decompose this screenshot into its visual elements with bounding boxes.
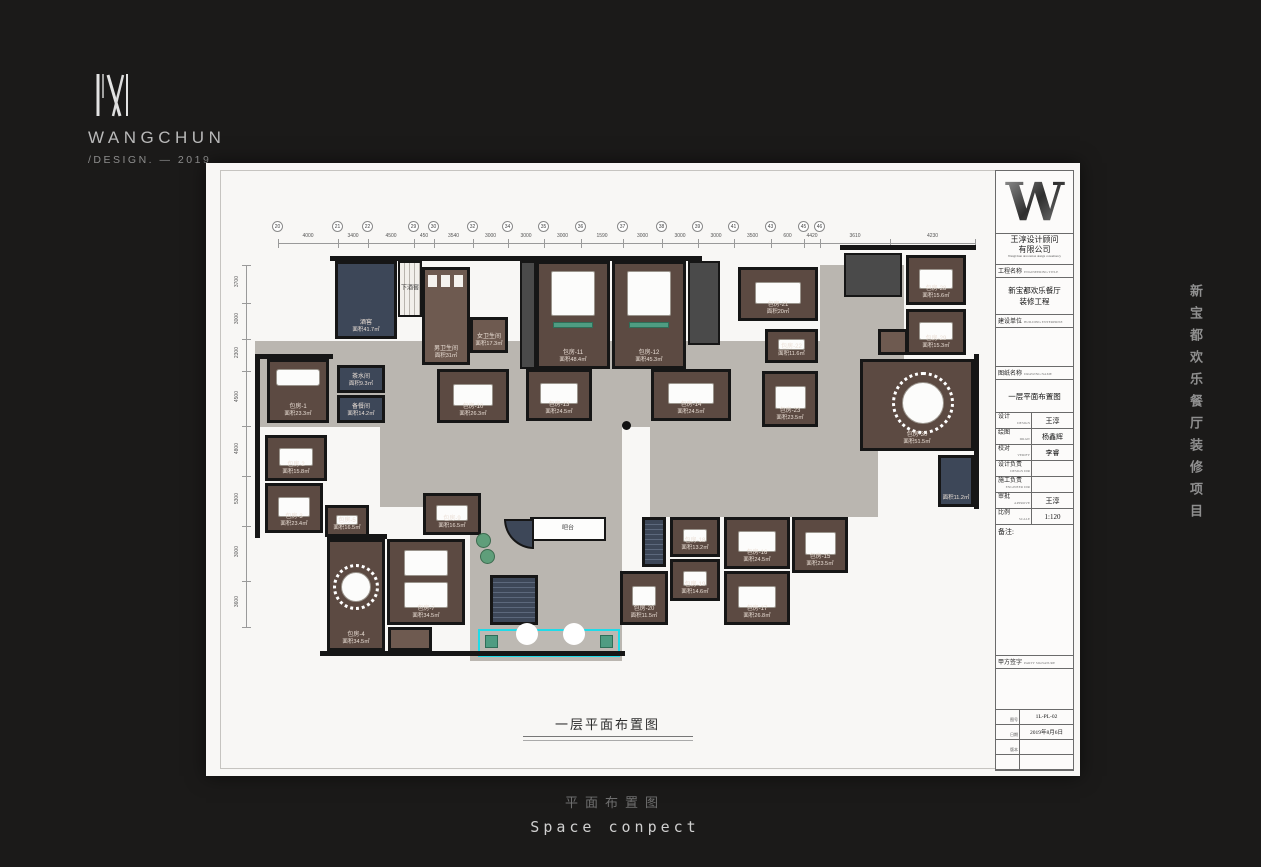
room-label: 酒窖面积41.7㎡ xyxy=(339,320,393,334)
drawing-name-label: 图纸名称DRAWING NAME xyxy=(996,367,1073,380)
table-icon xyxy=(919,269,952,289)
dimension-tick xyxy=(820,239,821,248)
table-icon xyxy=(278,497,310,517)
dimension-value: 4500 xyxy=(234,391,240,402)
room-label: 包房-11面积48.4㎡ xyxy=(540,350,606,364)
wall-segment xyxy=(974,354,979,509)
plan-room: 包房-22面积11.6㎡ xyxy=(765,329,818,363)
titleblock-w-logo-icon: W xyxy=(1005,174,1065,230)
plan-room: 备餐间面积14.2㎡ xyxy=(337,395,385,423)
plan-room: 男卫生间面积31㎡ xyxy=(422,267,470,365)
grid-bubble: 35 xyxy=(538,221,549,232)
dimension-line xyxy=(246,265,247,627)
caption-underline xyxy=(523,736,693,741)
grid-bubble: 30 xyxy=(428,221,439,232)
wall-segment xyxy=(255,354,260,538)
dimension-value: 4420 xyxy=(806,233,817,239)
dimension-tick xyxy=(623,239,624,248)
room-label: 备餐间面积14.2㎡ xyxy=(341,404,381,418)
plan-room: 包房-14面积24.5㎡ xyxy=(651,369,731,421)
sign-label: 甲方签字PARTY SIGNATURE xyxy=(996,656,1073,669)
entry-door-icon xyxy=(563,623,585,645)
plan-room: 茶水间面积9.3㎡ xyxy=(337,365,385,393)
plan-room: 吧台 xyxy=(530,517,606,541)
project-label: 工程名称ENGINEERING TITLE xyxy=(996,265,1073,278)
planter-icon xyxy=(600,635,613,648)
table-icon xyxy=(738,586,775,608)
remark-cell: 备注: xyxy=(996,525,1073,656)
table-icon xyxy=(805,532,836,555)
dimension-value: 4500 xyxy=(385,233,396,239)
plan-room: 包房-13面积24.5㎡ xyxy=(526,369,592,421)
dimension-tick xyxy=(698,239,699,248)
grid-bubble: 32 xyxy=(467,221,478,232)
wall-segment xyxy=(330,256,702,261)
dimension-value: 5300 xyxy=(234,493,240,504)
wangchun-logo-icon xyxy=(90,70,136,120)
side-project-text: 新宝都欢乐餐厅装修项目 xyxy=(1186,284,1205,526)
dimension-value: 3400 xyxy=(347,233,358,239)
plan-room: 包房-17面积26.8㎡ xyxy=(724,571,790,625)
wall-segment xyxy=(255,354,333,359)
plant-icon xyxy=(480,549,495,564)
entry-door-icon xyxy=(516,623,538,645)
plan-room xyxy=(688,261,720,345)
dimension-tick xyxy=(434,239,435,248)
dimension-line xyxy=(278,243,975,244)
dimension-tick xyxy=(414,239,415,248)
client-value xyxy=(996,328,1073,367)
room-label: 包房-10面积26.3㎡ xyxy=(441,404,505,418)
brand-name: WANGCHUN xyxy=(88,128,225,148)
plan-room xyxy=(642,517,666,567)
room-label: 包房-4面积34.5㎡ xyxy=(331,632,381,646)
plan-room: 包房-15面积23.5㎡ xyxy=(792,517,848,573)
dimension-value: 3000 xyxy=(674,233,685,239)
plan-room xyxy=(844,253,902,297)
dimension-value: 450 xyxy=(420,233,428,239)
table-icon xyxy=(540,383,577,404)
round-table-icon xyxy=(341,572,371,602)
titleblock-person-row: 设计负责DESIGN DIR xyxy=(996,461,1073,477)
dimension-tick xyxy=(242,476,251,477)
table-icon xyxy=(778,339,804,350)
dimension-tick xyxy=(544,239,545,248)
dimension-tick xyxy=(242,426,251,427)
room-label: 男卫生间面积31㎡ xyxy=(426,346,466,360)
corridor xyxy=(470,421,622,661)
titleblock-bottom-row: 日期2019年8月6日 xyxy=(996,725,1073,740)
plan-room: 包房-19面积14.6㎡ xyxy=(670,559,720,601)
dimension-value: 3000 xyxy=(557,233,568,239)
grid-bubble: 21 xyxy=(332,221,343,232)
table-icon xyxy=(668,383,714,404)
dimension-tick xyxy=(242,627,251,628)
dimension-tick xyxy=(242,303,251,304)
room-label: 面积11.2㎡ xyxy=(942,495,970,502)
footer-captions: 平面布置图 Space conpect xyxy=(400,792,830,836)
table-icon xyxy=(453,384,494,406)
dimension-tick xyxy=(242,339,251,340)
dimension-tick xyxy=(242,265,251,266)
footer-caption-cn: 平面布置图 xyxy=(400,792,830,811)
room-label: 包房-21面积20㎡ xyxy=(742,302,814,316)
dimension-value: 600 xyxy=(783,233,791,239)
grid-bubble: 45 xyxy=(798,221,809,232)
dimension-value: 3000 xyxy=(234,546,240,557)
dimension-tick xyxy=(242,581,251,582)
dimension-value: 3000 xyxy=(485,233,496,239)
plan-room: 包房-20面积11.5㎡ xyxy=(620,571,668,625)
room-label: 吧台 xyxy=(533,525,603,533)
company-name: 王淳设计顾问 有限公司 WangChun decoration design c… xyxy=(996,234,1073,265)
svg-text:W: W xyxy=(1005,174,1065,230)
project-name: 新宝都欢乐餐厅 装修工程 xyxy=(996,278,1073,315)
dimension-tick xyxy=(662,239,663,248)
plan-room: 包房-21面积20㎡ xyxy=(738,267,818,321)
grid-bubble: 39 xyxy=(692,221,703,232)
plan-room xyxy=(388,627,432,651)
wc-stalls-icon xyxy=(428,275,463,287)
table-icon xyxy=(683,571,708,585)
plan-caption-text: 一层平面布置图 xyxy=(545,714,670,736)
plan-room: 包房-23面积23.5㎡ xyxy=(762,371,818,427)
room-label: 包房-7面积34.5㎡ xyxy=(391,606,461,620)
client-label: 建设单位BUILDING ENTERPRISE xyxy=(996,315,1073,328)
titleblock-bottom-row xyxy=(996,755,1073,769)
sign-box xyxy=(996,669,1073,710)
grid-bubble: 43 xyxy=(765,221,776,232)
page-background: WANGCHUN /DESIGN. — 2019 酒窖面积41.7㎡下酒窖男卫生… xyxy=(0,0,1261,867)
plan-room: 包房-4面积34.5㎡ xyxy=(327,539,385,651)
grid-bubble: 38 xyxy=(656,221,667,232)
table-icon xyxy=(404,582,449,608)
sofa-icon xyxy=(276,369,321,386)
plan-room xyxy=(878,329,908,355)
dimension-value: 1590 xyxy=(596,233,607,239)
room-label: 包房-30面积51.5㎡ xyxy=(864,432,970,446)
plan-room: 包房-12面积45.3㎡ xyxy=(612,261,686,369)
dimension-tick xyxy=(338,239,339,248)
titleblock-person-row: 校对VERIFY李睿 xyxy=(996,445,1073,461)
dimension-value: 3600 xyxy=(234,596,240,607)
plan-room: 包房-2面积15.8㎡ xyxy=(265,435,327,481)
dimension-tick xyxy=(473,239,474,248)
dimension-tick xyxy=(581,239,582,248)
plan-room: 包房-5面积16.5㎡ xyxy=(325,505,369,537)
table-icon xyxy=(627,271,672,316)
dimension-tick xyxy=(804,239,805,248)
room-label: 包房-12面积45.3㎡ xyxy=(616,350,682,364)
plan-room: 女卫生间面积17.3㎡ xyxy=(470,317,508,353)
dimension-tick xyxy=(508,239,509,248)
dimension-tick xyxy=(368,239,369,248)
titleblock-person-row: 设计DESIGN王淳 xyxy=(996,413,1073,429)
titleblock-logo: W xyxy=(996,171,1073,234)
room-label: 女卫生间面积17.3㎡ xyxy=(474,334,504,348)
table-icon xyxy=(279,448,314,466)
round-table-icon xyxy=(902,382,944,424)
titleblock-person-row: 审批APPROVE王淳 xyxy=(996,493,1073,509)
plan-room xyxy=(520,261,536,369)
wall-segment xyxy=(327,534,387,539)
drawing-sheet: 酒窖面积41.7㎡下酒窖男卫生间面积31㎡女卫生间面积17.3㎡包房-11面积4… xyxy=(206,163,1080,776)
grid-bubble: 22 xyxy=(362,221,373,232)
table-icon xyxy=(683,529,708,543)
plan-room: 包房-11面积48.4㎡ xyxy=(536,261,610,369)
plan-room: 酒窖面积41.7㎡ xyxy=(335,261,397,339)
room-label: 包房-23面积23.5㎡ xyxy=(766,408,814,422)
table-icon xyxy=(336,515,357,525)
plan-room: 包房-30面积51.5㎡ xyxy=(860,359,974,451)
logo-block: WANGCHUN /DESIGN. — 2019 xyxy=(88,70,225,166)
room-label: 包房-17面积26.8㎡ xyxy=(728,606,786,620)
table-icon xyxy=(775,386,806,409)
titleblock-person-row: 比例SCALE1:120 xyxy=(996,509,1073,524)
brand-subtitle: /DESIGN. — 2019 xyxy=(88,154,225,166)
room-label: 下酒窖 xyxy=(401,285,419,293)
grid-bubble: 29 xyxy=(408,221,419,232)
dimension-tick xyxy=(771,239,772,248)
wall-segment xyxy=(320,651,625,656)
dimension-tick xyxy=(278,239,279,248)
dimension-value: 3540 xyxy=(448,233,459,239)
dimension-value: 3500 xyxy=(747,233,758,239)
dimension-value: 3000 xyxy=(234,313,240,324)
room-label: 包房-20面积11.5㎡ xyxy=(624,606,664,620)
dimension-tick xyxy=(734,239,735,248)
plan-room: 包房-3面积23.4㎡ xyxy=(265,483,323,533)
plan-room: 面积11.2㎡ xyxy=(938,455,974,507)
plan-caption: 一层平面布置图 xyxy=(220,714,995,741)
titleblock-bottom-row: 图号1L-PL-02 xyxy=(996,710,1073,725)
titleblock-person-row: 绘图DRAW杨鑫辉 xyxy=(996,429,1073,445)
planter-icon xyxy=(485,635,498,648)
table-icon xyxy=(755,282,801,304)
plan-room: 包房-18面积13.2㎡ xyxy=(670,517,720,557)
titleblock: W 王淳设计顾问 有限公司 WangChun decoration design… xyxy=(995,170,1074,771)
dimension-value: 4000 xyxy=(302,233,313,239)
plan-room: 包房-1面积23.3㎡ xyxy=(267,359,329,423)
tb-people: 设计DESIGN王淳绘图DRAW杨鑫辉校对VERIFY李睿设计负责DESIGN … xyxy=(996,413,1073,525)
table-icon xyxy=(436,505,468,522)
grid-bubble: 46 xyxy=(814,221,825,232)
table-icon xyxy=(738,531,775,552)
dimension-value: 3000 xyxy=(710,233,721,239)
table-icon xyxy=(632,586,656,605)
dimension-tick xyxy=(242,526,251,527)
accent-bar xyxy=(629,322,670,328)
dimension-value: 3000 xyxy=(520,233,531,239)
corridor xyxy=(818,451,878,517)
dimension-value: 3610 xyxy=(849,233,860,239)
grid-bubble: 36 xyxy=(575,221,586,232)
wall-segment xyxy=(840,245,976,250)
dimension-value: 3000 xyxy=(637,233,648,239)
table-icon xyxy=(551,271,596,316)
plan-room: 包房-7面积34.5㎡ xyxy=(387,539,465,625)
footer-caption-en: Space conpect xyxy=(400,818,830,836)
column-dot xyxy=(622,421,631,430)
grid-bubble: 37 xyxy=(617,221,628,232)
plan-room: 包房-29面积15.3㎡ xyxy=(906,309,966,355)
dimension-value: 3700 xyxy=(234,276,240,287)
titleblock-bottom-row: 版本 xyxy=(996,740,1073,755)
room-label: 包房-15面积23.5㎡ xyxy=(796,554,844,568)
plan-room: 包房-28面积15.6㎡ xyxy=(906,255,966,305)
table-icon xyxy=(919,322,952,340)
plan-room: 包房-10面积26.3㎡ xyxy=(437,369,509,423)
plan-room xyxy=(490,575,538,625)
dimension-value: 4230 xyxy=(927,233,938,239)
grid-bubble: 34 xyxy=(502,221,513,232)
room-label: 茶水间面积9.3㎡ xyxy=(341,374,381,388)
dimension-value: 2300 xyxy=(234,347,240,358)
drawing-name: 一层平面布置图 xyxy=(996,380,1073,413)
tb-bottom-rows: 图号1L-PL-02日期2019年8月6日版本 xyxy=(996,710,1073,770)
grid-bubble: 20 xyxy=(272,221,283,232)
titleblock-person-row: 施工负责ENGINEER DIR xyxy=(996,477,1073,493)
plan-room: 下酒窖 xyxy=(398,261,422,317)
dimension-tick xyxy=(242,371,251,372)
plan-canvas: 酒窖面积41.7㎡下酒窖男卫生间面积31㎡女卫生间面积17.3㎡包房-11面积4… xyxy=(220,215,995,715)
table-icon xyxy=(404,550,449,576)
room-label: 包房-1面积23.3㎡ xyxy=(271,404,325,418)
plan-room: 包房-16面积24.5㎡ xyxy=(724,517,790,569)
grid-bubble: 41 xyxy=(728,221,739,232)
accent-bar xyxy=(553,322,594,328)
dimension-value: 4800 xyxy=(234,443,240,454)
plan-room: 包房-9面积16.5㎡ xyxy=(423,493,481,535)
plant-icon xyxy=(476,533,491,548)
